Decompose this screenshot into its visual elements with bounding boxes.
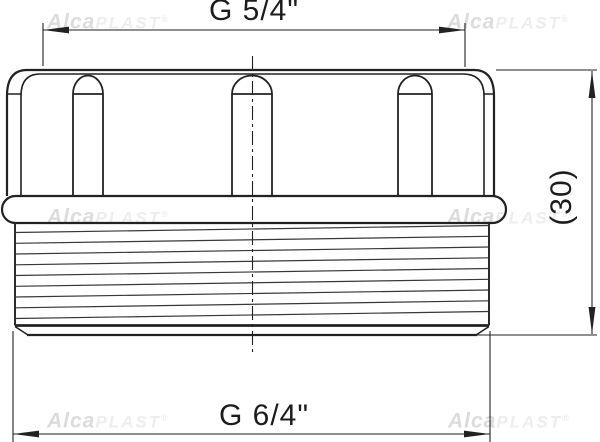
bottom-thread-dimension-label: G 6/4" (199, 399, 329, 433)
height-dimension-label: (30) (545, 152, 579, 242)
drawing-canvas: AlcaPLAST® AlcaPLAST® AlcaPLAST® AlcaPLA… (0, 0, 600, 442)
fitting-line-drawing (0, 0, 600, 442)
arrowhead-down-icon (589, 307, 596, 334)
knurled-cap-outline (7, 70, 494, 196)
arrowhead-right-icon (464, 431, 490, 438)
arrowhead-right-icon (439, 27, 465, 34)
collar-bead (2, 196, 506, 223)
arrowhead-left-icon (13, 431, 39, 438)
dimension-top (43, 23, 465, 67)
top-thread-dimension-label: G 5/4" (189, 0, 319, 28)
arrowhead-up-icon (589, 71, 596, 98)
arrowhead-left-icon (43, 27, 69, 34)
